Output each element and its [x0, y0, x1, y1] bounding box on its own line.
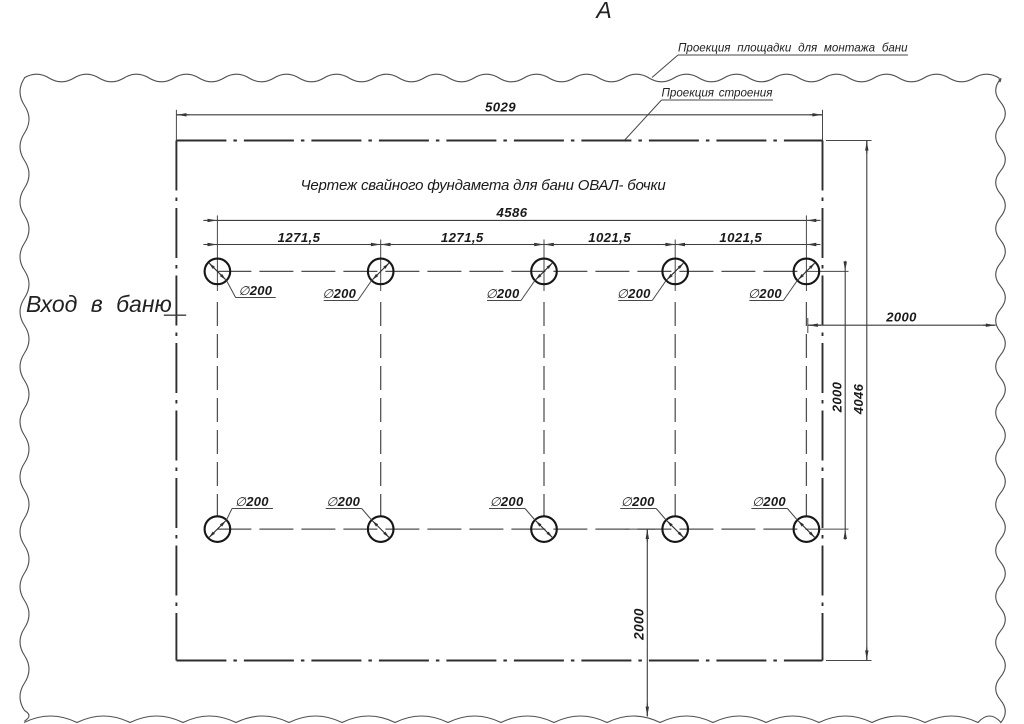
svg-text:∅200: ∅200 — [490, 494, 524, 509]
svg-text:Проекция строения: Проекция строения — [662, 87, 773, 100]
svg-text:А: А — [594, 0, 611, 23]
svg-text:∅200: ∅200 — [326, 494, 360, 509]
svg-text:∅200: ∅200 — [748, 286, 782, 301]
svg-text:Вход в баню: Вход в баню — [26, 291, 172, 317]
svg-text:1271,5: 1271,5 — [278, 230, 321, 245]
svg-text:Проекция площадки для монтажа: Проекция площадки для монтажа бани — [678, 42, 908, 55]
svg-text:Чертеж свайного фундамета для: Чертеж свайного фундамета для бани ОВАЛ-… — [300, 177, 666, 194]
svg-text:2000: 2000 — [830, 381, 845, 413]
svg-text:5029: 5029 — [485, 99, 516, 114]
svg-text:2000: 2000 — [632, 608, 647, 641]
svg-text:∅200: ∅200 — [322, 286, 356, 301]
svg-text:4046: 4046 — [851, 383, 866, 415]
svg-text:∅200: ∅200 — [752, 494, 786, 509]
svg-text:∅200: ∅200 — [486, 286, 520, 301]
svg-text:∅200: ∅200 — [235, 494, 269, 509]
svg-text:1271,5: 1271,5 — [441, 230, 484, 245]
svg-text:1021,5: 1021,5 — [719, 230, 762, 245]
svg-text:∅200: ∅200 — [617, 286, 651, 301]
svg-text:2000: 2000 — [885, 310, 917, 325]
svg-text:4586: 4586 — [496, 205, 528, 220]
svg-text:∅200: ∅200 — [621, 494, 655, 509]
svg-text:1021,5: 1021,5 — [588, 230, 631, 245]
svg-text:∅200: ∅200 — [239, 283, 273, 298]
